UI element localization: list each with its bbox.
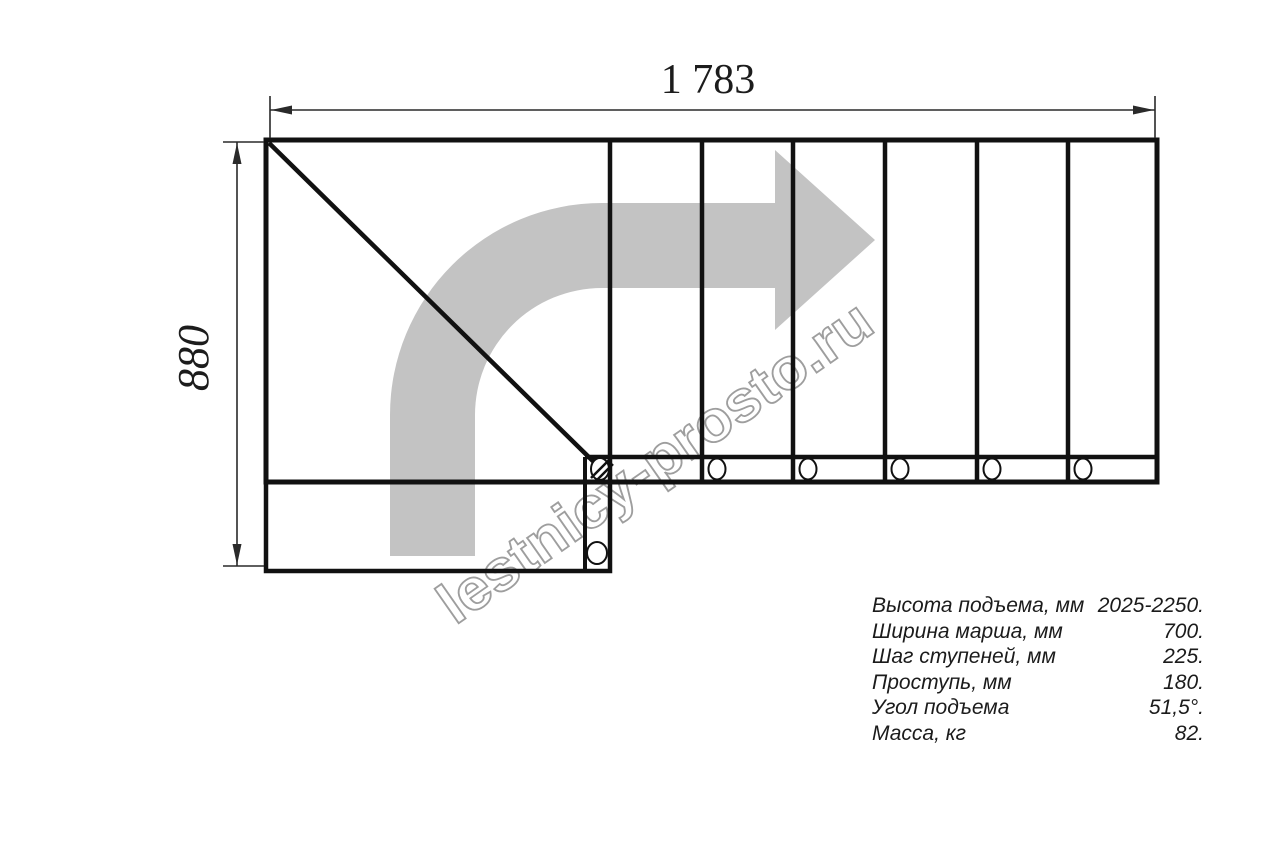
staircase-drawing-page: lestnicy-prosto.ru lestnicy-prosto.ru: [0, 0, 1280, 853]
spec-row-tread: Проступь, мм 180.: [872, 670, 1204, 696]
left-extension-lines: [223, 142, 264, 566]
arrowhead-right: [1133, 106, 1154, 115]
spec-label: Масса, кг: [872, 721, 966, 747]
dimension-arrowheads: [233, 106, 1155, 566]
dimension-lines: [223, 96, 1155, 566]
spec-row-height: Высота подъема, мм 2025-2250.: [872, 593, 1204, 619]
fastener-circle: [709, 459, 726, 480]
spec-value: 225.: [1163, 644, 1204, 670]
fastener-circle: [1075, 459, 1092, 480]
spec-label: Проступь, мм: [872, 670, 1012, 696]
fastener-circle-lower: [587, 542, 607, 564]
arrowhead-left: [271, 106, 292, 115]
spec-label: Высота подъема, мм: [872, 593, 1084, 619]
fastener-circle: [800, 459, 817, 480]
spec-value: 700.: [1163, 619, 1204, 645]
spec-row-mass: Масса, кг 82.: [872, 721, 1204, 747]
width-dimension-label: 1 783: [661, 57, 756, 103]
spec-table: Высота подъема, мм 2025-2250. Ширина мар…: [872, 593, 1204, 746]
arrowhead-bottom: [233, 544, 242, 565]
spec-value: 82.: [1175, 721, 1204, 747]
spec-label: Шаг ступеней, мм: [872, 644, 1056, 670]
spec-label: Ширина марша, мм: [872, 619, 1063, 645]
spec-value: 2025-2250.: [1098, 593, 1204, 619]
fastener-circle: [984, 459, 1001, 480]
spec-value: 51,5°.: [1149, 695, 1204, 721]
spec-label: Угол подъема: [872, 695, 1009, 721]
spec-row-flight-width: Ширина марша, мм 700.: [872, 619, 1204, 645]
spec-row-step-pitch: Шаг ступеней, мм 225.: [872, 644, 1204, 670]
spec-value: 180.: [1163, 670, 1204, 696]
fastener-circle: [892, 459, 909, 480]
height-dimension-label: 880: [169, 325, 218, 391]
arrowhead-top: [233, 143, 242, 164]
spec-row-angle: Угол подъема 51,5°.: [872, 695, 1204, 721]
